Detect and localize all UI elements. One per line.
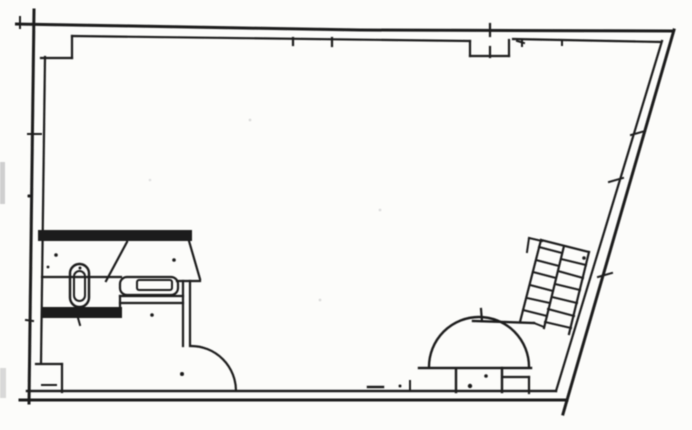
bottom-wall-dot bbox=[399, 385, 402, 388]
left-wall-tick-2 bbox=[26, 320, 33, 321]
stair-tread-l3 bbox=[533, 272, 556, 278]
sink-basin bbox=[137, 280, 172, 290]
bathroom-door-leaf-left bbox=[106, 242, 127, 281]
scan-speckle-2 bbox=[379, 209, 382, 212]
entry-dot-1 bbox=[468, 384, 472, 388]
stair-top-hook bbox=[527, 238, 529, 252]
stair-tread-r6 bbox=[545, 322, 571, 328]
toilet-bowl bbox=[74, 271, 85, 301]
stair-tread-l5 bbox=[527, 298, 550, 303]
bathroom-door-leaf-right bbox=[189, 241, 200, 279]
stair-tread-r5 bbox=[548, 309, 574, 316]
scan-smudge-1 bbox=[0, 162, 5, 204]
understair-join bbox=[534, 323, 544, 327]
entry-door-arc bbox=[429, 317, 529, 367]
bath-band-tick bbox=[78, 318, 80, 325]
top-wall-inner-left bbox=[72, 36, 470, 41]
floor-plan-drawing bbox=[0, 0, 692, 430]
bathroom-top-wall bbox=[38, 230, 192, 241]
floor-plan-page bbox=[0, 0, 692, 430]
right-wall-inner bbox=[556, 41, 662, 391]
stair-tread-r4 bbox=[552, 297, 577, 303]
bath-dot-1 bbox=[54, 253, 58, 257]
bath-dot-2 bbox=[47, 266, 50, 269]
top-wall-inner-right bbox=[513, 39, 661, 42]
stair-tread-l6 bbox=[523, 310, 547, 316]
bath-dot-3 bbox=[172, 258, 176, 262]
scan-smudge-2 bbox=[0, 368, 6, 398]
bath-dot-4 bbox=[150, 313, 154, 317]
stair-tread-r2 bbox=[558, 271, 583, 278]
plan-line-layer bbox=[0, 10, 674, 414]
stair-tread-l2 bbox=[536, 260, 559, 266]
entry-dot-2 bbox=[484, 374, 488, 378]
bathroom-door-arc bbox=[191, 346, 236, 391]
stair-dot bbox=[582, 256, 586, 260]
top-wall-outer bbox=[15, 24, 674, 31]
left-wall-dot bbox=[27, 194, 30, 197]
scan-speckle-1 bbox=[249, 119, 252, 122]
right-wall-outer bbox=[563, 30, 674, 414]
stair-tread-r1 bbox=[561, 259, 586, 265]
bathroom-bottom-wall bbox=[41, 307, 122, 318]
understair-tick bbox=[481, 309, 482, 321]
scan-speckle-4 bbox=[149, 179, 152, 182]
scan-speckle-3 bbox=[319, 299, 322, 302]
toilet-dot bbox=[79, 267, 82, 270]
stair-tread-l4 bbox=[530, 285, 553, 291]
stair-tread-r3 bbox=[555, 284, 580, 290]
left-wall-outer bbox=[29, 10, 34, 403]
room-dot bbox=[180, 372, 184, 376]
stair-tread-l1 bbox=[539, 247, 562, 253]
